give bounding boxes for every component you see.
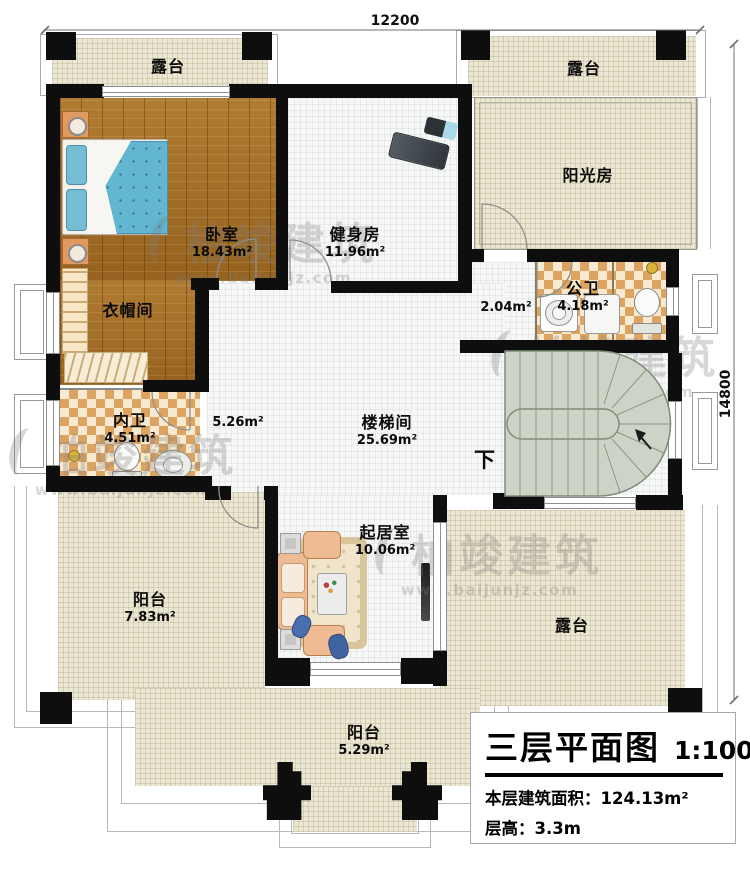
plan-scale: 1:100 [674,736,750,765]
window [310,662,401,676]
pillar [40,692,72,724]
nightstand [62,111,89,138]
window [668,401,682,459]
wall [493,493,544,509]
wall [143,380,209,392]
room-label-private-bath: 内卫4.51m² [70,412,190,446]
room-label-cloakroom: 衣帽间 [68,302,188,321]
stairs-bay-floor [505,353,672,495]
wall [636,495,683,510]
wall [46,476,212,492]
room-label-sunroom: 阳光房 [528,167,648,186]
title-rule [485,773,723,777]
pillar [242,32,272,60]
wall [265,486,278,676]
wall [666,316,679,342]
wall [668,353,682,401]
wall [668,459,682,499]
wall [458,249,484,262]
wall [460,340,679,353]
hanger-rail [64,352,148,383]
plan-title: 三层平面图 [485,721,660,769]
shower-knob [646,262,658,274]
pillar [656,30,686,60]
room-label-living-room: 起居室10.06m² [325,524,445,558]
window [46,400,60,466]
wall [433,495,447,522]
floor-plan: 柏竣建筑 www.baijunjz.com 柏竣建筑 www.baijunjz.… [0,0,750,871]
coffee-table [317,573,347,615]
room-label-terrace-bottom: 露台 [512,617,632,636]
wall [255,278,288,290]
room-label-stairwell: 楼梯间25.69m² [327,414,447,448]
nightstand [62,238,89,265]
window-bay-right-upper [692,274,718,334]
window [666,287,679,316]
pillow [66,145,87,185]
dimension-right: 14800 [718,360,734,428]
pillar [46,32,76,60]
room-label-balcony-left: 阳台7.83m² [90,591,210,625]
stairs-down-indicator: 下 [465,448,505,473]
room-label-terrace-top-right: 露台 [534,60,634,79]
sliding-door [102,86,230,97]
private-bath-edge-line [60,388,146,390]
pillar [461,30,490,60]
pillow [66,189,87,231]
room-label-terrace-top-left: 露台 [118,58,218,77]
shower-knob [68,450,80,462]
room-label-gym: 健身房11.96m² [295,226,415,260]
floor-area-value: 124.13m² [601,789,689,808]
room-label-bedroom: 卧室18.43m² [162,226,282,260]
window-bay-left-lower [14,394,50,474]
window [544,497,636,509]
area-label-corridor: 2.04m² [446,300,566,315]
terrace-bottom-floor [440,510,685,706]
sunroom-glass-edge [697,97,711,249]
wall [666,249,679,287]
wall [195,278,209,386]
area-label-hallway: 5.26m² [178,415,298,430]
window [46,292,60,354]
tv [421,563,430,621]
floor-height-label: 层高： [485,819,535,838]
wall [433,651,447,686]
window-bay-right-lower [692,392,718,470]
dimension-top: 12200 [350,13,440,29]
wall [265,658,310,686]
floor-area-label: 本层建筑面积： [485,789,601,808]
wall [205,486,231,500]
room-label-balcony-bottom: 阳台5.29m² [304,724,424,758]
side-table [280,533,301,554]
wall [229,84,472,98]
wall [527,249,679,262]
wall [331,281,472,293]
window-bay-left-upper [14,284,50,360]
floor-height-value: 3.3m [535,819,581,838]
title-block: 三层平面图 1:100 本层建筑面积：124.13m² 层高：3.3m [470,712,736,844]
